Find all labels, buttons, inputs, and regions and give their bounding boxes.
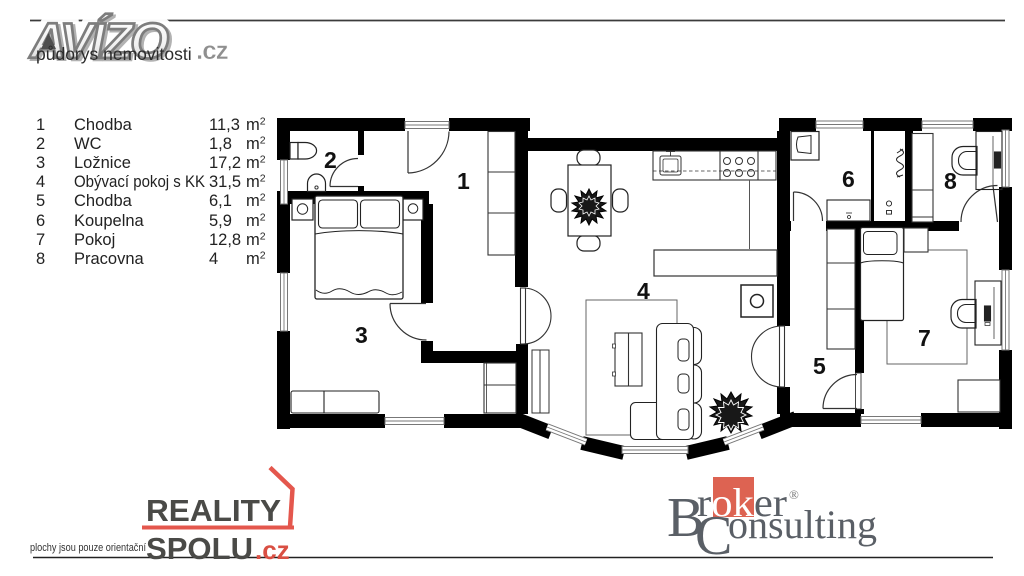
svg-text:půdorys nemovitosti: půdorys nemovitosti bbox=[36, 44, 192, 64]
svg-text:C: C bbox=[695, 505, 732, 567]
svg-text:.cz: .cz bbox=[196, 35, 229, 65]
svg-text:8: 8 bbox=[944, 168, 957, 194]
svg-text:Koupelna: Koupelna bbox=[74, 212, 145, 230]
svg-text:®: ® bbox=[789, 487, 799, 502]
svg-text:3: 3 bbox=[36, 154, 45, 172]
svg-text:12,8: 12,8 bbox=[209, 231, 241, 249]
svg-text:6,1: 6,1 bbox=[209, 192, 232, 210]
svg-text:5,9: 5,9 bbox=[209, 212, 232, 230]
svg-text:31,5: 31,5 bbox=[209, 173, 241, 191]
svg-text:Pokoj: Pokoj bbox=[74, 231, 115, 249]
svg-text:REALITY: REALITY bbox=[146, 493, 281, 528]
svg-text:8: 8 bbox=[36, 250, 45, 268]
svg-text:4: 4 bbox=[36, 173, 45, 191]
svg-text:WC: WC bbox=[74, 135, 102, 153]
svg-text:7: 7 bbox=[918, 325, 931, 351]
svg-text:plochy jsou pouze orientační: plochy jsou pouze orientační bbox=[30, 542, 146, 554]
svg-text:Chodba: Chodba bbox=[74, 116, 133, 134]
svg-text:Ložnice: Ložnice bbox=[74, 154, 131, 172]
svg-text:2: 2 bbox=[36, 135, 45, 153]
svg-text:5: 5 bbox=[36, 192, 45, 210]
svg-text:4: 4 bbox=[209, 250, 218, 268]
svg-text:7: 7 bbox=[36, 231, 45, 249]
svg-text:.cz: .cz bbox=[255, 535, 290, 565]
svg-text:1,8: 1,8 bbox=[209, 135, 232, 153]
svg-text:11,3: 11,3 bbox=[209, 116, 240, 134]
svg-text:17,2: 17,2 bbox=[209, 154, 241, 172]
svg-text:Chodba: Chodba bbox=[74, 192, 133, 210]
svg-text:6: 6 bbox=[842, 166, 855, 192]
svg-text:1: 1 bbox=[36, 116, 45, 134]
svg-text:onsulting: onsulting bbox=[728, 502, 877, 547]
svg-text:1: 1 bbox=[457, 168, 470, 194]
svg-text:4: 4 bbox=[637, 278, 650, 304]
svg-text:SPOLU: SPOLU bbox=[146, 531, 253, 566]
svg-text:5: 5 bbox=[813, 353, 826, 379]
svg-text:Obývací pokoj s KK: Obývací pokoj s KK bbox=[74, 173, 205, 191]
svg-text:3: 3 bbox=[355, 322, 368, 348]
svg-text:Pracovna: Pracovna bbox=[74, 250, 145, 268]
svg-text:2: 2 bbox=[324, 147, 337, 173]
svg-text:6: 6 bbox=[36, 212, 45, 230]
